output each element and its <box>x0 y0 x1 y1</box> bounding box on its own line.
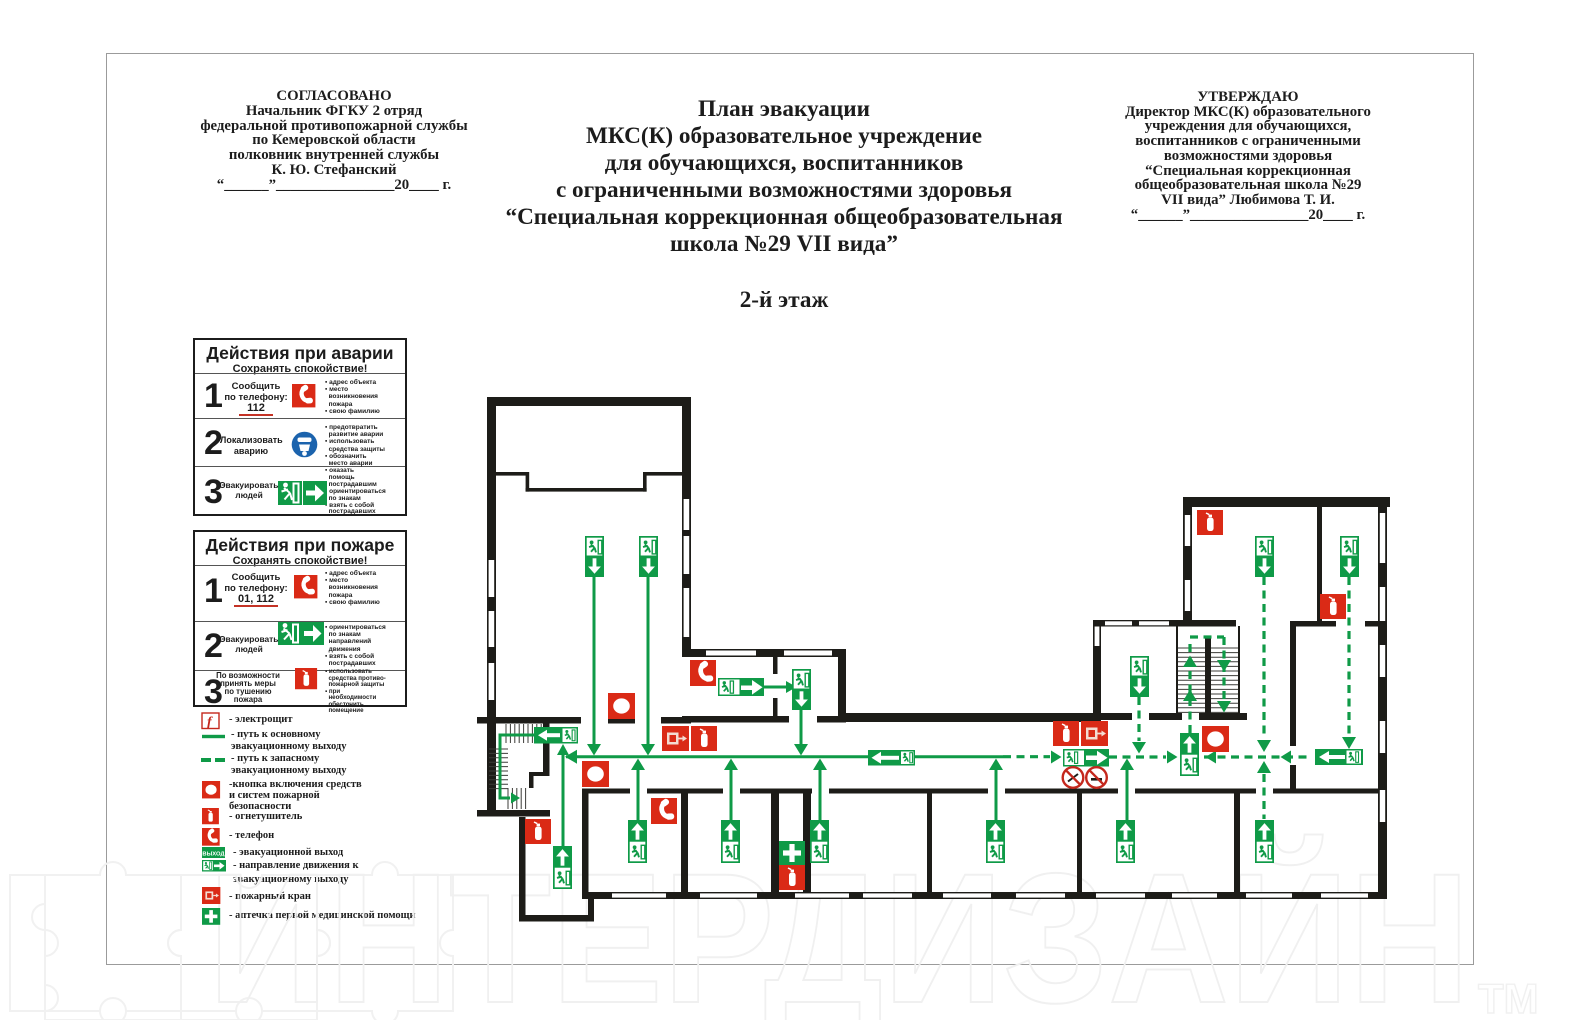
svg-text:ИНТЕРДИЗАЙН: ИНТЕРДИЗАЙН <box>208 834 1470 1020</box>
svg-text:ВЫХОД: ВЫХОД <box>202 852 225 858</box>
svg-text:ТМ: ТМ <box>1478 975 1539 1020</box>
